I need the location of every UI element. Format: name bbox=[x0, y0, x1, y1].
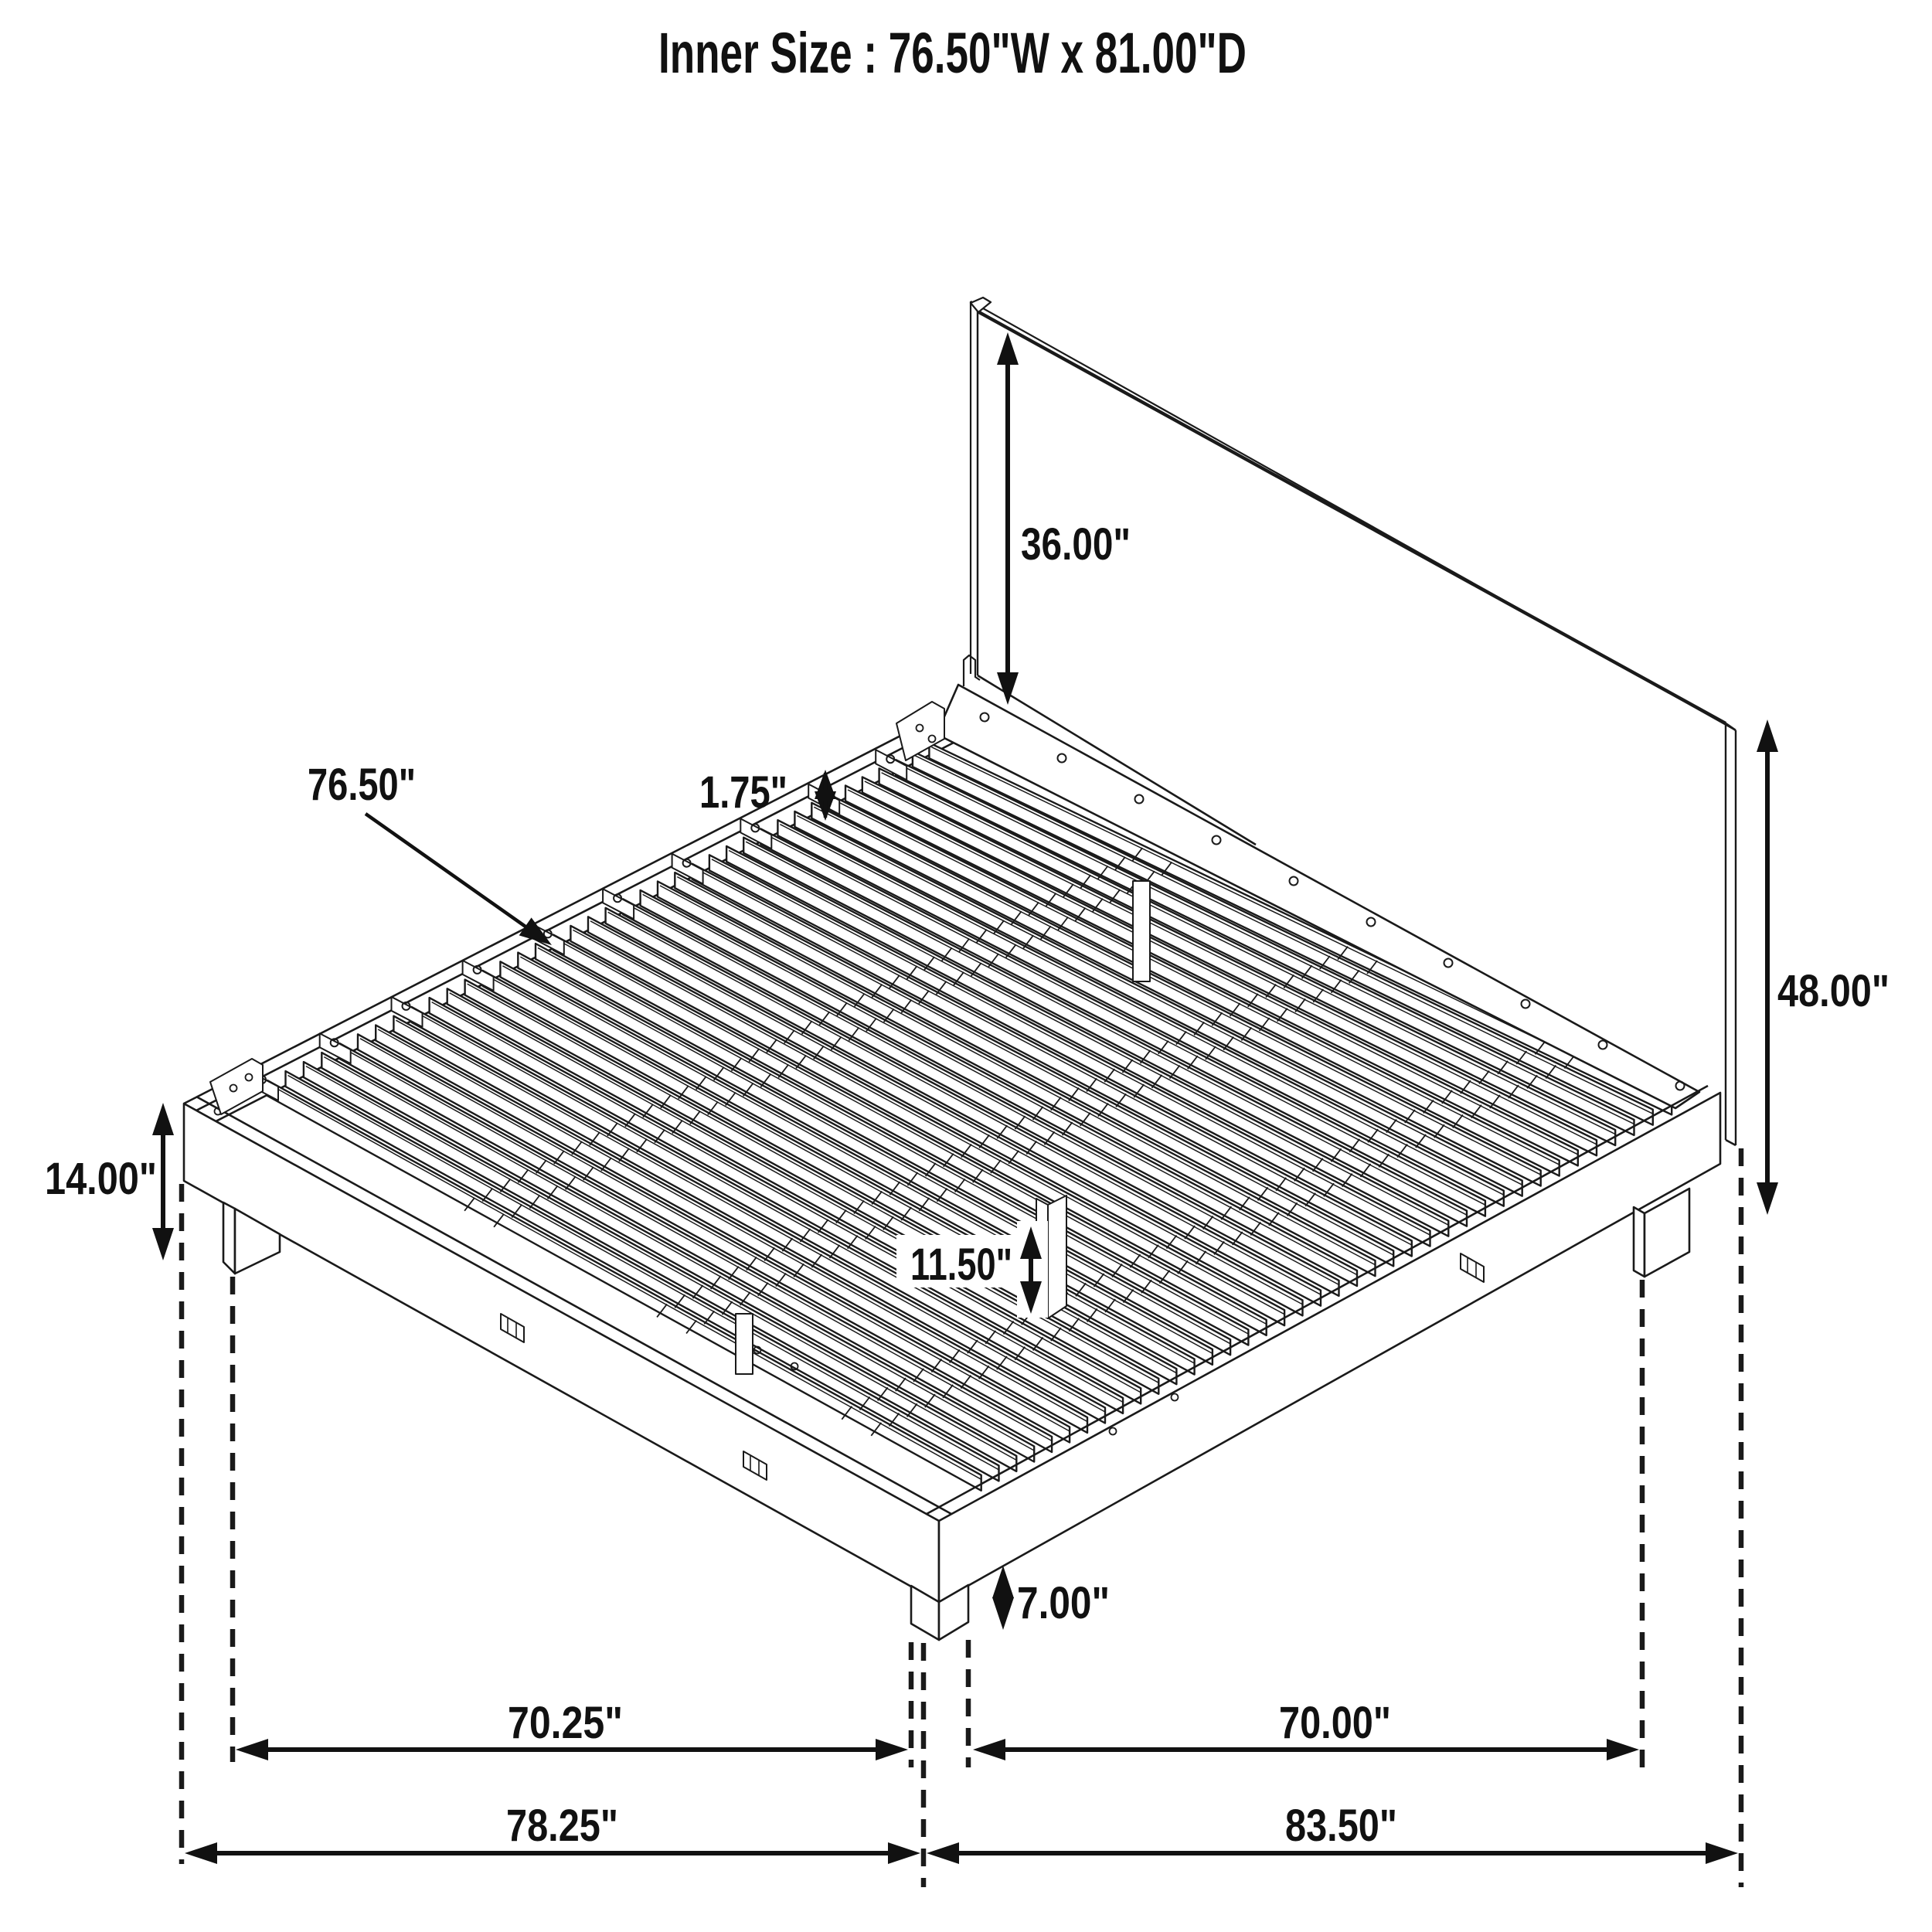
svg-text:48.00": 48.00" bbox=[1777, 966, 1889, 1016]
svg-text:1.75": 1.75" bbox=[699, 767, 787, 818]
svg-text:36.00": 36.00" bbox=[1021, 519, 1131, 570]
svg-text:Inner Size : 76.50"W x 81.00"D: Inner Size : 76.50"W x 81.00"D bbox=[658, 21, 1247, 85]
svg-text:70.00": 70.00" bbox=[1279, 1698, 1391, 1748]
svg-text:11.50": 11.50" bbox=[910, 1240, 1012, 1290]
svg-text:7.00": 7.00" bbox=[1017, 1578, 1110, 1628]
svg-text:78.25": 78.25" bbox=[506, 1801, 618, 1851]
svg-text:14.00": 14.00" bbox=[45, 1154, 157, 1204]
svg-text:83.50": 83.50" bbox=[1285, 1801, 1397, 1851]
svg-text:76.50": 76.50" bbox=[308, 760, 416, 810]
svg-text:70.25": 70.25" bbox=[508, 1698, 623, 1748]
